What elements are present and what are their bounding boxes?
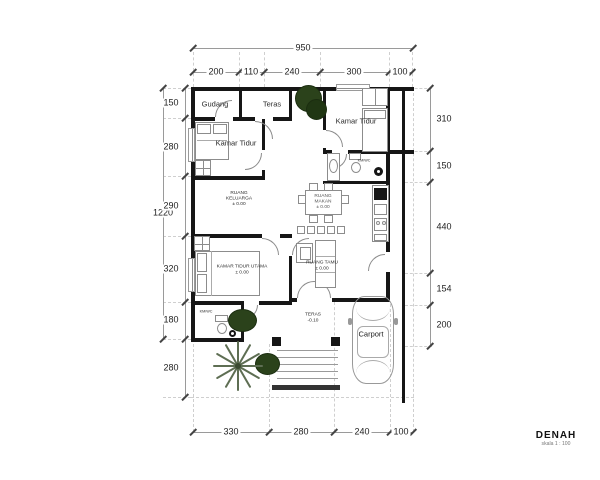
window [188, 128, 195, 162]
dimension-line [430, 88, 431, 346]
step-line [277, 378, 338, 379]
dim-bottom-2: 280 [291, 428, 310, 437]
dimension-tick [409, 44, 416, 51]
boundary-wall [402, 87, 405, 403]
sofa-cushion [337, 226, 345, 234]
tree-icon [306, 99, 327, 120]
dim-top-total: 950 [293, 44, 312, 53]
door-arc [245, 153, 262, 170]
wall [259, 301, 292, 305]
car-mirror [394, 318, 398, 325]
room-label-ruang-makan: RUANG MAKAN ± 0.00 [314, 194, 331, 211]
palm-plant-icon [210, 338, 266, 394]
dining-chair [309, 215, 318, 223]
stove-icon [374, 188, 387, 200]
door-arc [368, 254, 385, 271]
window-mullion [192, 259, 193, 291]
elevation-text: ± 0.00 [314, 205, 331, 211]
elevation-text: ± 0.00 [217, 270, 268, 276]
window-mullion [192, 129, 193, 161]
dim-right-3: 440 [434, 223, 453, 232]
plot-bottom-line [191, 397, 414, 398]
sofa-cushion [317, 226, 325, 234]
dim-bottom-4: 100 [391, 428, 410, 437]
sofa-cushion [307, 226, 315, 234]
nightstand-divider [195, 244, 209, 245]
room-label-kamar-tidur-right: Kamar Tidur [336, 117, 377, 126]
extension-line [334, 302, 335, 432]
double-door-arc [297, 281, 314, 298]
room-label-teras-top: Teras [263, 100, 281, 109]
pillow [213, 124, 227, 134]
step-line [277, 350, 338, 351]
room-label-teras-bottom: TERAS -0.10 [305, 312, 321, 323]
extension-line [163, 88, 191, 89]
dim-top-5: 100 [390, 68, 409, 77]
drain-hole [377, 170, 380, 173]
dining-chair [341, 195, 349, 204]
extension-line [163, 302, 191, 303]
nightstand [194, 236, 210, 251]
shrub-icon [228, 309, 257, 332]
toilet-tank [215, 315, 228, 322]
dim-left-5: 180 [161, 316, 180, 325]
step-line [277, 357, 338, 358]
dim-right-2: 150 [434, 162, 453, 171]
step-edge [272, 385, 340, 390]
room-label-kamar-tidur-left: Kamar Tidur [216, 139, 257, 148]
wall [292, 298, 297, 302]
car-mirror [348, 318, 352, 325]
pillow [197, 124, 211, 134]
wall [289, 87, 292, 121]
room-label-kmwc-top: KM/WC [358, 159, 371, 163]
elevation-text: ± 0.00 [226, 202, 252, 208]
column [272, 337, 281, 346]
step-line [277, 364, 338, 365]
elevation-text: ± 0.00 [306, 266, 338, 272]
dim-top-3: 240 [282, 68, 301, 77]
wall [323, 148, 326, 154]
cabinet-divider [196, 168, 210, 169]
wall [289, 256, 292, 303]
sofa-divider [316, 256, 335, 257]
sofa-divider [316, 272, 335, 273]
room-label-ruang-keluarga: RUANG KELUARGA ± 0.00 [226, 191, 252, 208]
pillow [197, 274, 207, 293]
wall [191, 301, 243, 305]
extension-line [163, 236, 191, 237]
extension-line [163, 339, 191, 340]
wall [233, 117, 255, 121]
dim-left-2: 280 [161, 143, 180, 152]
sofa-cushion [297, 226, 305, 234]
wardrobe [362, 88, 388, 106]
drawing-title: DENAH [520, 430, 592, 441]
dim-right-4: 154 [434, 285, 453, 294]
dim-top-2: 110 [242, 68, 260, 77]
dimension-line [185, 88, 186, 397]
door-arc [255, 121, 273, 139]
dimension-tick [426, 342, 433, 349]
floor-drain [229, 330, 236, 337]
dim-left-4: 320 [161, 265, 180, 274]
room-label-kamar-tidur-utama: KAMAR TIDUR UTAMA ± 0.00 [217, 264, 268, 275]
step-line [277, 371, 338, 372]
sofa-cushion [327, 226, 335, 234]
floor-plan-canvas: 950 200 110 240 300 100 1220 150 280 290… [0, 0, 600, 480]
wall [280, 234, 292, 238]
dining-chair [324, 215, 333, 223]
room-label-carport: Carport [358, 330, 383, 339]
door-arc [326, 130, 343, 147]
drain-hole [231, 332, 234, 335]
extension-line [413, 88, 414, 432]
toilet-bowl [217, 323, 227, 334]
blanket-line [211, 251, 212, 296]
dim-bottom-1: 330 [221, 428, 240, 437]
dim-left-6: 280 [161, 364, 180, 373]
kitchen-sink [374, 204, 387, 215]
dim-right-1: 310 [434, 115, 453, 124]
dim-left-1: 150 [161, 99, 180, 108]
extension-line [193, 344, 194, 432]
elevation-text: -0.10 [305, 318, 321, 324]
room-label-kmwc-bottom: KM/WC [200, 310, 213, 314]
drawing-scale: skala 1 : 100 [525, 441, 586, 446]
window [188, 258, 195, 292]
wall [262, 170, 265, 180]
counter-cabinet [374, 234, 387, 241]
floor-drain [374, 167, 383, 176]
room-label-ruang-tamu: RUANG TAMU ± 0.00 [306, 260, 338, 271]
dim-left-3: 290 [161, 202, 180, 211]
extension-line [163, 118, 191, 119]
cabinet [195, 160, 211, 176]
column [331, 337, 340, 346]
title-block: DENAH skala 1 : 100 [520, 430, 592, 447]
dimension-line [193, 72, 413, 73]
dim-right-5: 200 [434, 321, 453, 330]
dim-top-1: 200 [206, 68, 225, 77]
toilet-bowl [351, 162, 361, 173]
door-arc [262, 238, 279, 255]
dim-top-4: 300 [344, 68, 363, 77]
dim-bottom-3: 240 [352, 428, 371, 437]
armchair-seat [300, 247, 311, 260]
wardrobe-divider [375, 89, 376, 105]
burner [376, 221, 380, 225]
room-label-gudang: Gudang [202, 100, 229, 109]
sink-basin [329, 159, 338, 173]
extension-line [163, 176, 191, 177]
wall [191, 176, 265, 180]
extension-line [163, 397, 191, 398]
wall [239, 87, 242, 119]
burner [382, 221, 386, 225]
pillow [197, 253, 207, 272]
